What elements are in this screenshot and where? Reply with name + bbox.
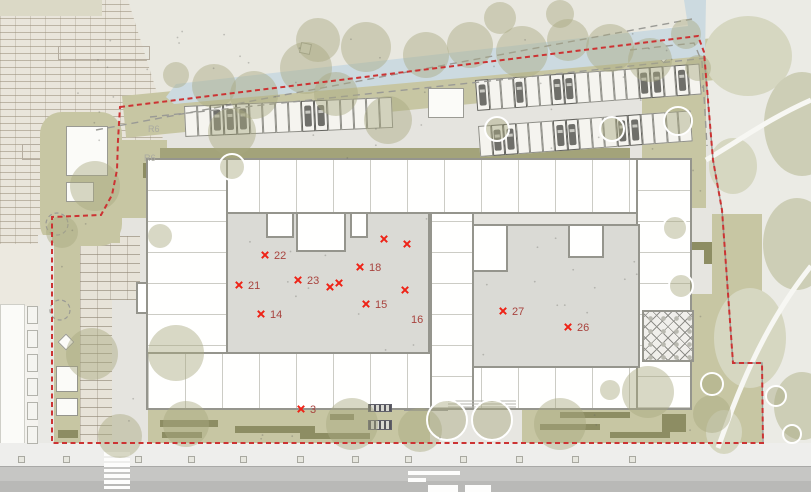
room-marker-label: 18 <box>369 262 381 274</box>
room-marker-label: 27 <box>512 306 524 318</box>
room-marker[interactable]: 27 <box>500 306 524 318</box>
room-marker-label: 21 <box>248 280 260 292</box>
room-marker-label: 26 <box>577 322 589 334</box>
tree-icon <box>693 395 731 433</box>
plan-overlay: R6R62221231815142726316 <box>0 0 811 492</box>
tree-icon <box>219 154 245 180</box>
tree-icon <box>671 19 701 49</box>
tree-icon <box>783 425 801 443</box>
tree-icon <box>192 64 236 108</box>
tree-icon <box>46 216 78 248</box>
tree-icon <box>341 22 391 72</box>
room-marker[interactable]: 23 <box>295 275 319 287</box>
room-marker-label: 23 <box>307 275 319 287</box>
tree-icon <box>427 400 467 440</box>
room-marker[interactable]: 26 <box>565 322 589 334</box>
room-marker[interactable] <box>381 236 387 242</box>
room-marker-label: 22 <box>274 250 286 262</box>
tree-icon <box>484 2 516 34</box>
tree-icon <box>766 386 786 406</box>
tree-icon <box>669 274 693 298</box>
tree-icon <box>496 26 548 78</box>
room-marker-label: 15 <box>375 299 387 311</box>
site-plan-canvas: R6R62221231815142726316 <box>0 0 811 492</box>
tree-icon <box>622 366 674 418</box>
tree-icon <box>546 0 574 28</box>
tree-icon <box>98 414 142 458</box>
room-marker-label: 16 <box>411 314 423 326</box>
tree-icon <box>208 108 256 156</box>
room-marker[interactable] <box>336 280 342 286</box>
tree-icon <box>685 55 711 81</box>
tree-icon <box>600 117 624 141</box>
room-marker[interactable] <box>402 287 408 293</box>
room-marker[interactable]: 21 <box>236 280 260 292</box>
tree-icon <box>472 400 512 440</box>
grid-label: R6 <box>144 153 156 163</box>
tree-icon <box>600 380 620 400</box>
tree-icon <box>148 224 172 248</box>
tree-icon <box>163 62 189 88</box>
room-marker[interactable]: 14 <box>258 309 282 321</box>
tree-icon <box>66 328 118 380</box>
tree-icon <box>296 18 340 62</box>
room-marker[interactable]: 15 <box>363 299 387 311</box>
tree-icon <box>628 38 672 82</box>
room-marker-label: 3 <box>310 404 316 416</box>
tree-icon <box>148 325 204 381</box>
room-marker[interactable] <box>327 284 333 290</box>
room-marker[interactable] <box>404 241 410 247</box>
tree-icon <box>663 216 687 240</box>
room-marker[interactable]: 18 <box>357 262 381 274</box>
room-marker[interactable]: 3 <box>298 404 316 416</box>
room-marker[interactable]: 22 <box>262 250 286 262</box>
tree-icon <box>364 96 412 144</box>
tree-icon <box>485 117 509 141</box>
tree-icon <box>701 373 723 395</box>
room-marker-label: 14 <box>270 309 282 321</box>
tree-icon <box>70 161 120 211</box>
grid-label: R6 <box>148 124 160 134</box>
tree-icon <box>664 107 692 135</box>
tree-icon <box>163 401 209 447</box>
park-tree-blob <box>714 288 786 388</box>
